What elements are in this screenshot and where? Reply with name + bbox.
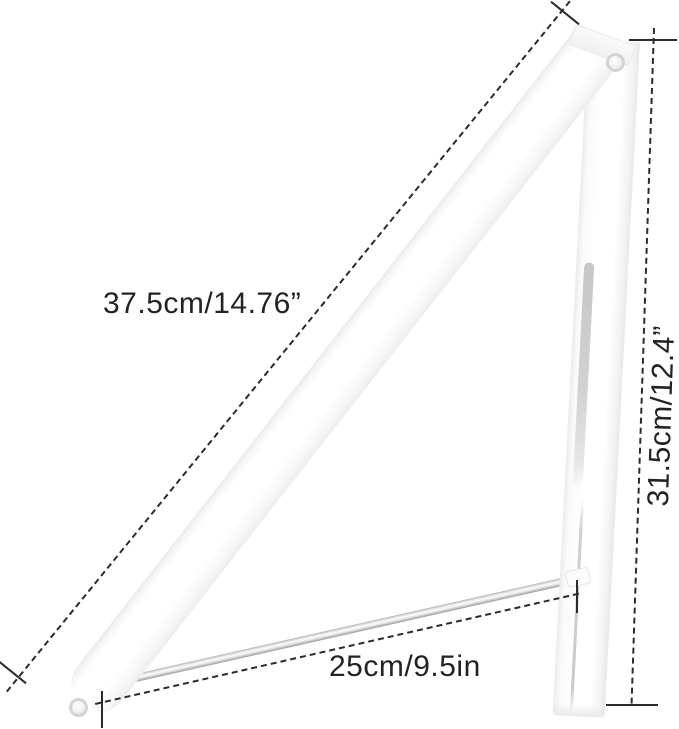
folding-arm xyxy=(60,21,626,724)
dimension-label-height: 31.5cm/12.4” xyxy=(642,306,679,527)
dimension-label-rod: 25cm/9.5in xyxy=(329,651,481,683)
dimension-line-arm xyxy=(6,1,571,693)
dimension-label-arm: 37.5cm/14.76” xyxy=(103,288,301,320)
dimension-tick-rod-right xyxy=(576,580,578,613)
product-dimension-diagram: 37.5cm/14.76” 31.5cm/12.4” 25cm/9.5in xyxy=(0,0,679,729)
dimension-tick-height-bottom xyxy=(606,704,658,706)
upright-bar xyxy=(553,40,640,718)
dimension-tick-rod-left xyxy=(101,691,103,728)
pivot-screw-bottom xyxy=(69,698,88,717)
upright-slot xyxy=(572,262,594,490)
pivot-screw-top xyxy=(606,53,625,72)
upright-bottom-shade xyxy=(553,703,606,718)
